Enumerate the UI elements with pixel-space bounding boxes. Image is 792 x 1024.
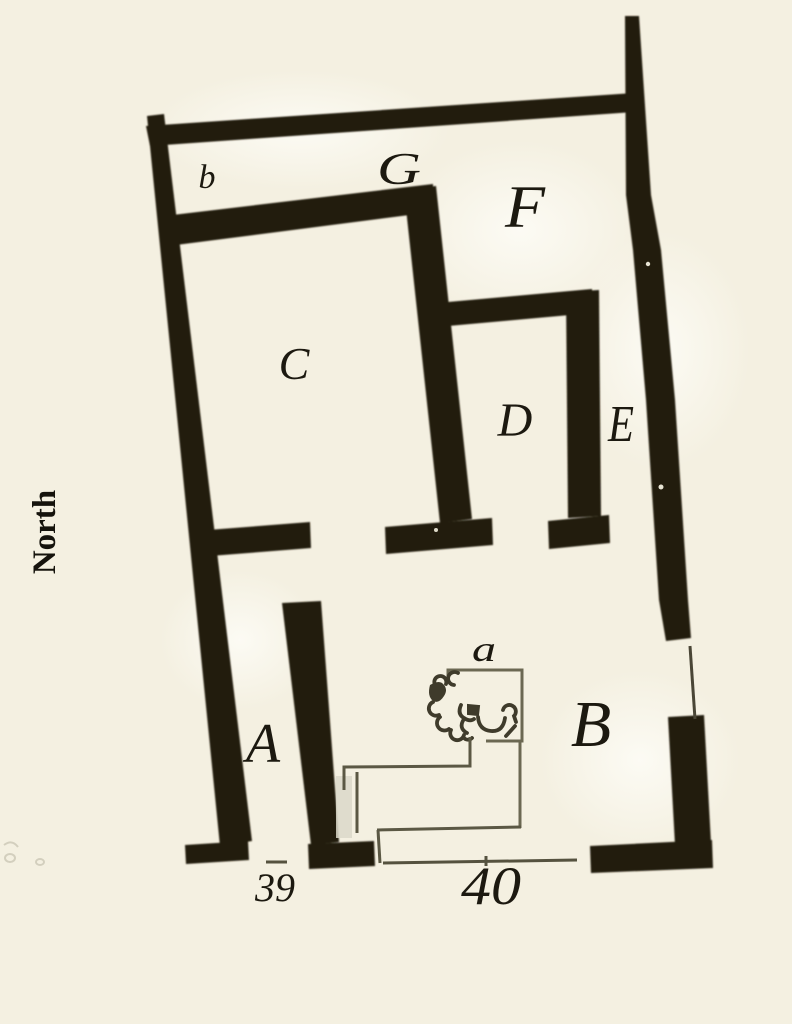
svg-text:North: North bbox=[27, 490, 63, 574]
svg-text:C: C bbox=[279, 338, 311, 389]
svg-text:b: b bbox=[199, 159, 216, 196]
svg-text:G: G bbox=[377, 143, 421, 194]
svg-text:40: 40 bbox=[461, 856, 521, 916]
svg-text:D: D bbox=[497, 394, 533, 447]
svg-text:B: B bbox=[571, 688, 611, 761]
svg-text:39: 39 bbox=[254, 865, 295, 910]
svg-text:A: A bbox=[242, 713, 281, 775]
svg-text:a: a bbox=[472, 629, 496, 669]
svg-text:E: E bbox=[607, 396, 634, 453]
svg-text:F: F bbox=[504, 174, 547, 240]
